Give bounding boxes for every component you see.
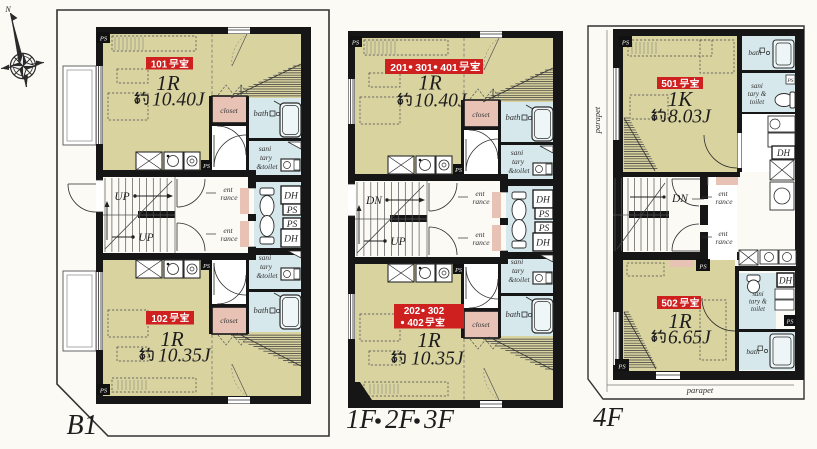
- svg-text:DH: DH: [776, 148, 790, 158]
- svg-text:DN: DN: [365, 195, 383, 207]
- svg-text:tary &: tary &: [749, 299, 768, 306]
- svg-text:bath: bath: [505, 309, 520, 319]
- svg-text:DH: DH: [535, 239, 551, 249]
- svg-text:sani: sani: [259, 253, 272, 262]
- svg-text:N: N: [4, 5, 11, 14]
- svg-text:8.03J: 8.03J: [668, 107, 712, 128]
- svg-text:PS: PS: [99, 36, 108, 43]
- svg-text:UP: UP: [138, 232, 153, 244]
- svg-text:PS: PS: [202, 264, 210, 270]
- svg-text:PS: PS: [351, 40, 360, 47]
- svg-text:PS: PS: [286, 206, 298, 216]
- svg-text:&toilet: &toilet: [508, 275, 530, 284]
- svg-text:rance: rance: [715, 237, 733, 246]
- svg-text:10.35J: 10.35J: [411, 349, 465, 370]
- svg-text:sani: sani: [511, 148, 524, 157]
- svg-text:rance: rance: [220, 234, 238, 243]
- svg-text:rance: rance: [472, 238, 490, 247]
- svg-text:bath: bath: [505, 112, 520, 122]
- svg-text:6.65J: 6.65J: [668, 328, 712, 349]
- svg-text:bath: bath: [253, 305, 268, 315]
- svg-text:PS: PS: [454, 268, 462, 274]
- svg-text:202: 202: [404, 306, 421, 317]
- svg-text:closet: closet: [472, 320, 490, 329]
- svg-text:302: 302: [428, 306, 445, 317]
- svg-text:PS: PS: [538, 210, 550, 220]
- svg-text:sani: sani: [751, 82, 763, 90]
- svg-text:closet: closet: [220, 316, 238, 325]
- svg-text:parapet: parapet: [686, 385, 714, 395]
- svg-text:102: 102: [151, 314, 168, 325]
- svg-text:201: 201: [390, 62, 408, 74]
- svg-text:10.40J: 10.40J: [152, 90, 206, 111]
- svg-text:UP: UP: [114, 191, 129, 203]
- svg-text:4F: 4F: [593, 402, 624, 432]
- svg-text:toilet: toilet: [750, 98, 765, 106]
- svg-text:tary: tary: [512, 266, 525, 275]
- svg-text:PS: PS: [786, 320, 794, 326]
- svg-text:parapet: parapet: [592, 106, 602, 134]
- svg-text:1F: 1F: [346, 404, 377, 434]
- svg-text:PS: PS: [617, 364, 626, 371]
- svg-text:&toilet: &toilet: [256, 271, 278, 280]
- svg-text:2F: 2F: [385, 404, 416, 434]
- svg-text:closet: closet: [220, 106, 238, 115]
- svg-text:&toilet: &toilet: [256, 162, 278, 171]
- svg-text:UP: UP: [390, 236, 405, 248]
- svg-text:tary: tary: [512, 157, 525, 166]
- svg-text:tary: tary: [260, 262, 273, 271]
- svg-text:toilet: toilet: [751, 306, 766, 313]
- svg-text:401: 401: [440, 62, 458, 74]
- svg-text:rance: rance: [715, 197, 733, 206]
- svg-text:PS: PS: [454, 168, 462, 174]
- svg-text:rance: rance: [220, 193, 238, 202]
- svg-text:sani: sani: [511, 257, 524, 266]
- svg-text:bath: bath: [253, 108, 268, 118]
- svg-text:rance: rance: [472, 197, 490, 206]
- svg-text:PS: PS: [698, 264, 707, 271]
- svg-text:502: 502: [661, 299, 678, 310]
- svg-text:PS: PS: [99, 388, 108, 395]
- svg-text:B1: B1: [66, 410, 97, 441]
- svg-text:PS: PS: [202, 164, 210, 170]
- svg-text:PS: PS: [786, 78, 793, 84]
- svg-text:3F: 3F: [423, 404, 455, 434]
- svg-text:10.35J: 10.35J: [158, 346, 212, 367]
- svg-text:DH: DH: [283, 192, 299, 202]
- svg-text:closet: closet: [472, 110, 490, 119]
- svg-text:tary: tary: [260, 153, 273, 162]
- svg-text:sani: sani: [259, 144, 272, 153]
- svg-text:PS: PS: [621, 40, 630, 47]
- svg-text:tary &: tary &: [748, 90, 767, 98]
- svg-text:10.40J: 10.40J: [414, 91, 468, 112]
- svg-text:&toilet: &toilet: [508, 166, 530, 175]
- svg-text:101: 101: [151, 59, 168, 70]
- svg-text:DH: DH: [778, 276, 792, 286]
- svg-text:DH: DH: [283, 235, 299, 245]
- svg-text:DH: DH: [535, 196, 551, 206]
